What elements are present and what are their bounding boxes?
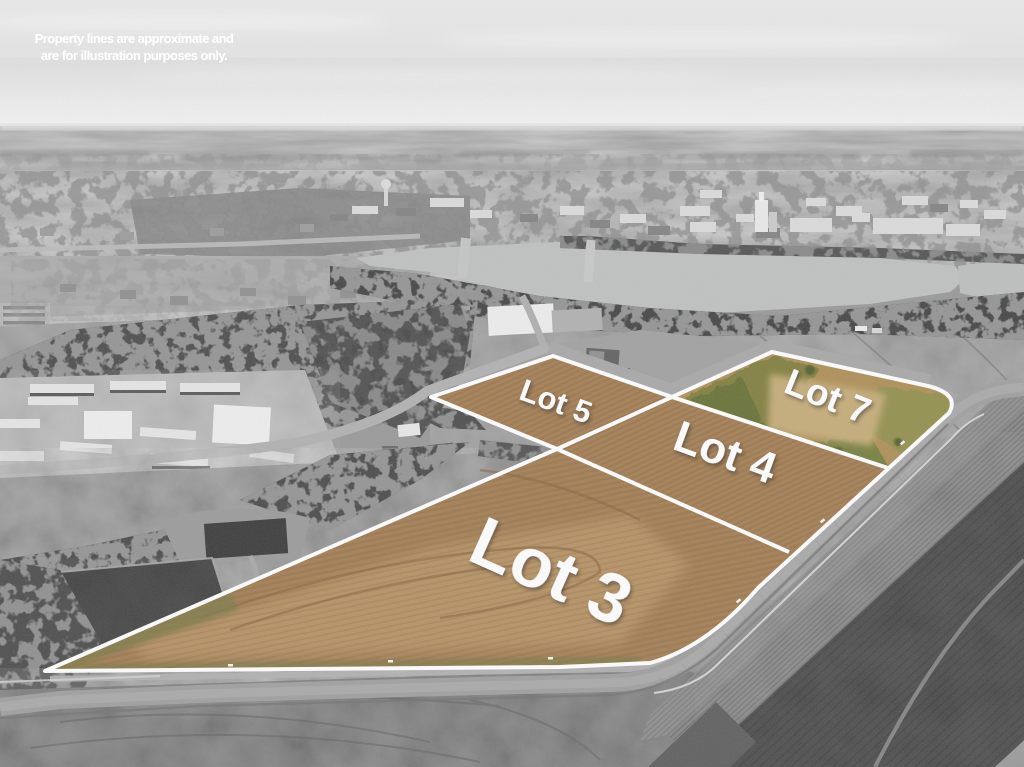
svg-text:Property lines are approximate: Property lines are approximate and (35, 31, 234, 46)
svg-text:are for illustration purposes: are for illustration purposes only. (41, 48, 227, 63)
